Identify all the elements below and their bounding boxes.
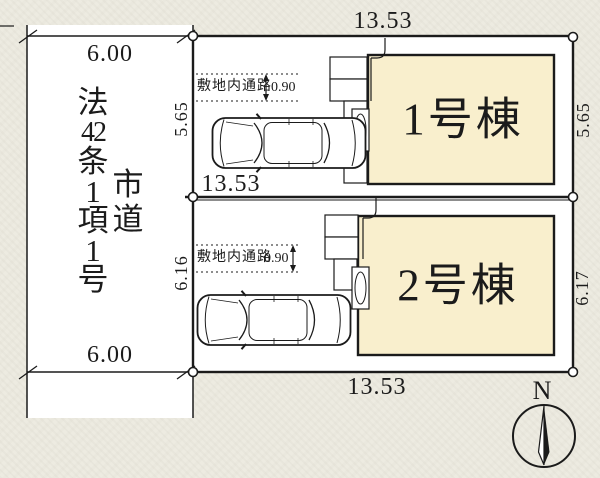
compass-icon (513, 405, 575, 467)
dim-road-width-bottom: 6.00 (87, 343, 133, 367)
dim-frontage-middle: 13.53 (202, 172, 261, 196)
lot2-passage-width: 0.90 (264, 252, 289, 266)
dim-lot1-depth-right: 5.65 (574, 102, 592, 138)
dim-lot2-depth-left: 6.16 (172, 255, 190, 291)
building-1-label: 1号棟 (402, 98, 524, 143)
lot1-passage-label: 敷地内通路 (197, 80, 272, 94)
lot1-passage-width: 0.90 (271, 81, 296, 95)
compass-north-label: N (533, 378, 552, 404)
dim-frontage-bottom: 13.53 (348, 375, 407, 399)
site-plan: 6.00 6.00 13.53 13.53 13.53 5.65 5.65 6.… (0, 0, 600, 478)
road-classification-label: 法 42 条 1 項 1 号 (74, 88, 112, 295)
car-lot2 (198, 291, 351, 349)
dim-frontage-top: 13.53 (354, 9, 413, 33)
dim-road-width-top: 6.00 (87, 42, 133, 66)
dim-lot2-depth-right: 6.17 (573, 270, 591, 306)
car-lot1 (213, 114, 366, 172)
dim-lot1-depth-left: 5.65 (172, 101, 190, 137)
building-2-label: 2号棟 (397, 264, 519, 309)
lot2-passage-label: 敷地内通路 (197, 251, 272, 265)
road-type-label: 市 道 (110, 167, 146, 237)
